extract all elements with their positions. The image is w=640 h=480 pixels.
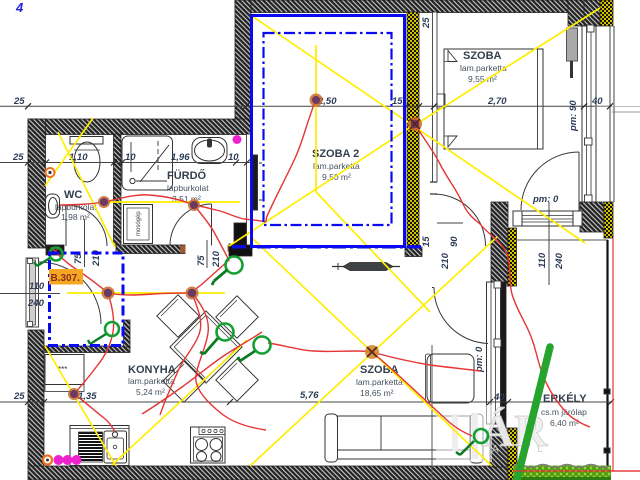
svg-text:25: 25 — [421, 17, 432, 29]
svg-text:75: 75 — [196, 255, 207, 266]
svg-text:KONYHA: KONYHA — [128, 364, 176, 376]
svg-text:240: 240 — [27, 298, 45, 309]
svg-text:mosógép: mosógép — [136, 211, 142, 236]
svg-text:cs.m járólap: cs.m járólap — [541, 407, 587, 417]
svg-text:B.307.: B.307. — [51, 273, 81, 284]
svg-text:110: 110 — [537, 252, 548, 268]
svg-text:WC: WC — [64, 189, 82, 201]
svg-text:4: 4 — [15, 0, 24, 15]
svg-text:10: 10 — [125, 152, 136, 163]
svg-text:2,70: 2,70 — [487, 96, 507, 107]
svg-text:lam.parketta: lam.parketta — [356, 377, 403, 387]
svg-text:240: 240 — [554, 252, 565, 270]
svg-text:5,76: 5,76 — [300, 390, 319, 401]
svg-text:18,65 m²: 18,65 m² — [360, 388, 394, 398]
svg-text:15: 15 — [421, 236, 432, 247]
svg-text:40: 40 — [591, 96, 603, 107]
svg-text:25: 25 — [13, 391, 25, 402]
svg-text:210: 210 — [211, 250, 222, 268]
svg-text:5,24 m²: 5,24 m² — [136, 387, 165, 397]
svg-text:40: 40 — [493, 392, 505, 403]
svg-text:25: 25 — [13, 96, 25, 107]
svg-text:1,35: 1,35 — [78, 391, 97, 402]
svg-text:90: 90 — [449, 236, 460, 247]
svg-text:pm: 0: pm: 0 — [532, 194, 559, 205]
svg-text:pm: 90: pm: 90 — [568, 100, 579, 132]
svg-text:9,50 m²: 9,50 m² — [322, 172, 351, 182]
svg-text:lapburkolat: lapburkolat — [167, 183, 209, 193]
svg-text:SZOBA 2: SZOBA 2 — [312, 148, 359, 160]
svg-text:SZOBA: SZOBA — [463, 50, 502, 62]
svg-text:10: 10 — [228, 152, 239, 163]
svg-text:lam.parketta: lam.parketta — [313, 161, 360, 171]
svg-text:25: 25 — [12, 152, 24, 163]
svg-text:210: 210 — [440, 252, 451, 270]
svg-text:110: 110 — [29, 281, 45, 292]
svg-text:1,96: 1,96 — [171, 152, 190, 163]
svg-text:lam.parketta: lam.parketta — [128, 376, 175, 386]
svg-text:pm: 0: pm: 0 — [474, 346, 485, 373]
svg-text:15: 15 — [392, 96, 403, 107]
svg-text:ERKÉLY: ERKÉLY — [543, 392, 587, 405]
svg-text:1,98 m²: 1,98 m² — [61, 212, 90, 222]
